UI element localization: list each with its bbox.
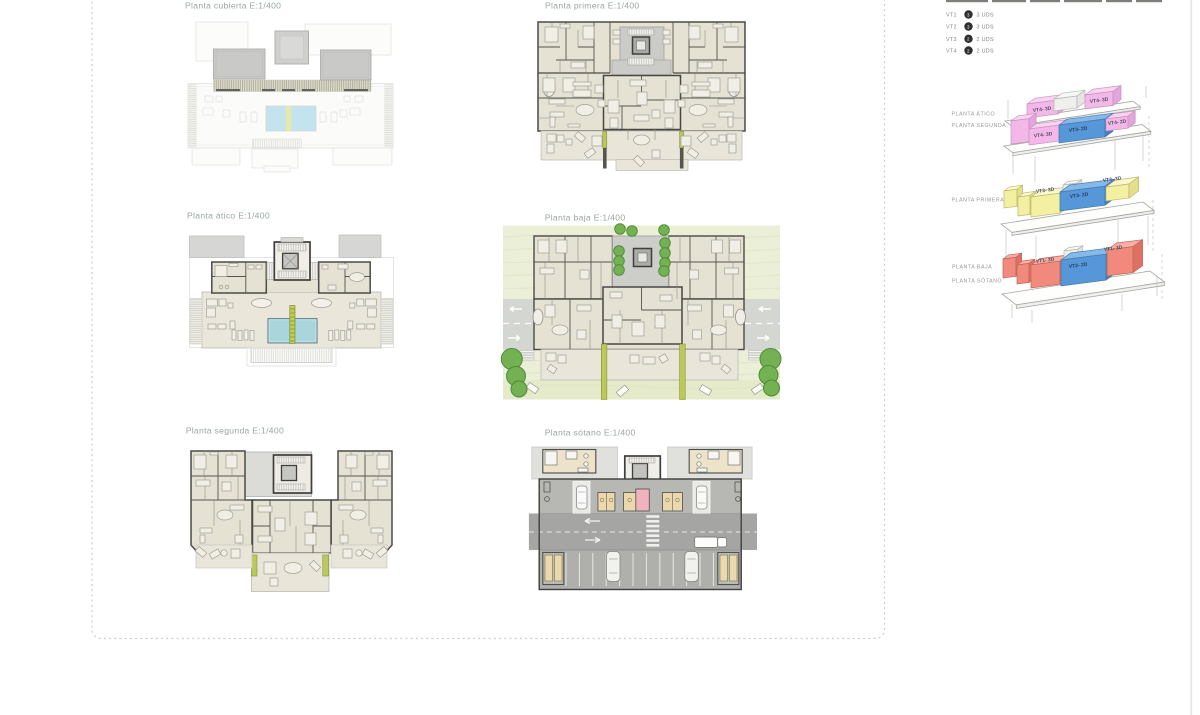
svg-text:PLANTA SEGUNDA: PLANTA SEGUNDA	[952, 123, 1007, 129]
svg-text:PLANTA BAJA: PLANTA BAJA	[952, 265, 992, 271]
svg-text:Planta baja E:1/400: Planta baja E:1/400	[545, 213, 626, 223]
svg-text:2 UDS: 2 UDS	[977, 49, 994, 55]
svg-text:VT1: VT1	[946, 13, 957, 19]
svg-text:Planta ático E:1/400: Planta ático E:1/400	[187, 211, 270, 221]
svg-text:PLANTA PRIMERA: PLANTA PRIMERA	[952, 198, 1005, 204]
svg-text:Planta sótano E:1/400: Planta sótano E:1/400	[545, 428, 636, 438]
svg-text:3 UDS: 3 UDS	[977, 13, 994, 19]
svg-text:Planta primera E:1/400: Planta primera E:1/400	[545, 1, 640, 11]
svg-text:Planta segunda E:1/400: Planta segunda E:1/400	[186, 426, 284, 436]
svg-text:VT3: VT3	[946, 37, 957, 43]
svg-text:VT4: VT4	[946, 49, 957, 55]
svg-text:2 UDS: 2 UDS	[977, 37, 994, 43]
svg-text:PLANTA ÁTICO: PLANTA ÁTICO	[952, 111, 996, 118]
svg-text:3 UDS: 3 UDS	[977, 25, 994, 31]
svg-text:PLANTA SÓTANO: PLANTA SÓTANO	[952, 278, 1002, 285]
svg-text:Planta cubierta E:1/400: Planta cubierta E:1/400	[185, 1, 281, 11]
svg-text:VT2: VT2	[946, 25, 957, 31]
